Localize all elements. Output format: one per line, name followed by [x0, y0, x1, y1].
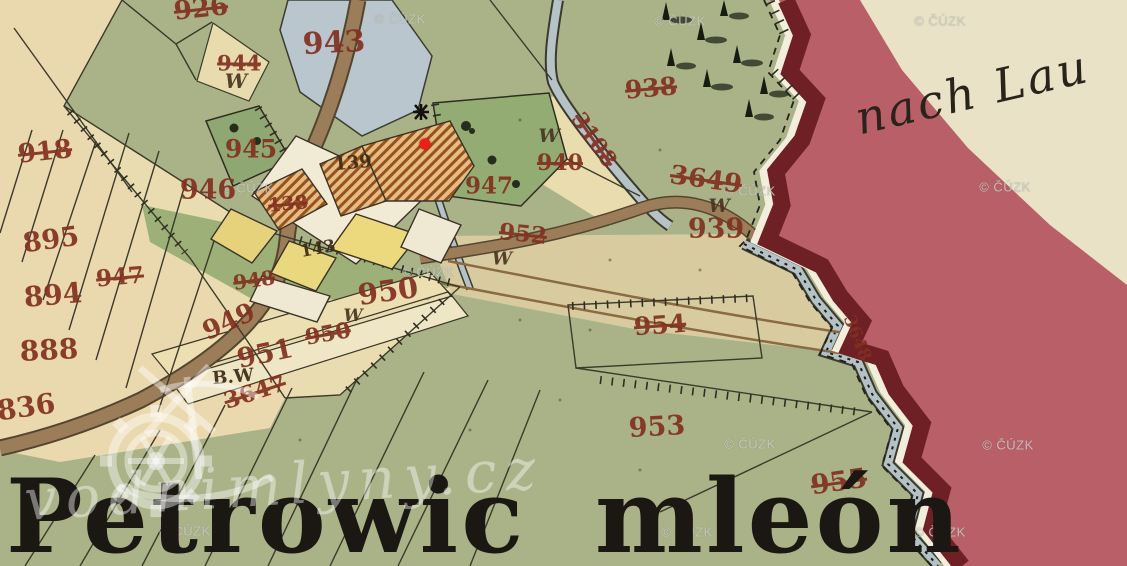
cadastral-map-viewport[interactable]: © ČÚZK© ČÚZK© ČÚZK© ČÚZK© ČÚZK© ČÚZK© ČÚ…	[0, 0, 1127, 566]
mill-symbol-star	[413, 104, 429, 120]
map-canvas	[0, 0, 1127, 566]
mill-location-marker[interactable]	[420, 139, 431, 150]
